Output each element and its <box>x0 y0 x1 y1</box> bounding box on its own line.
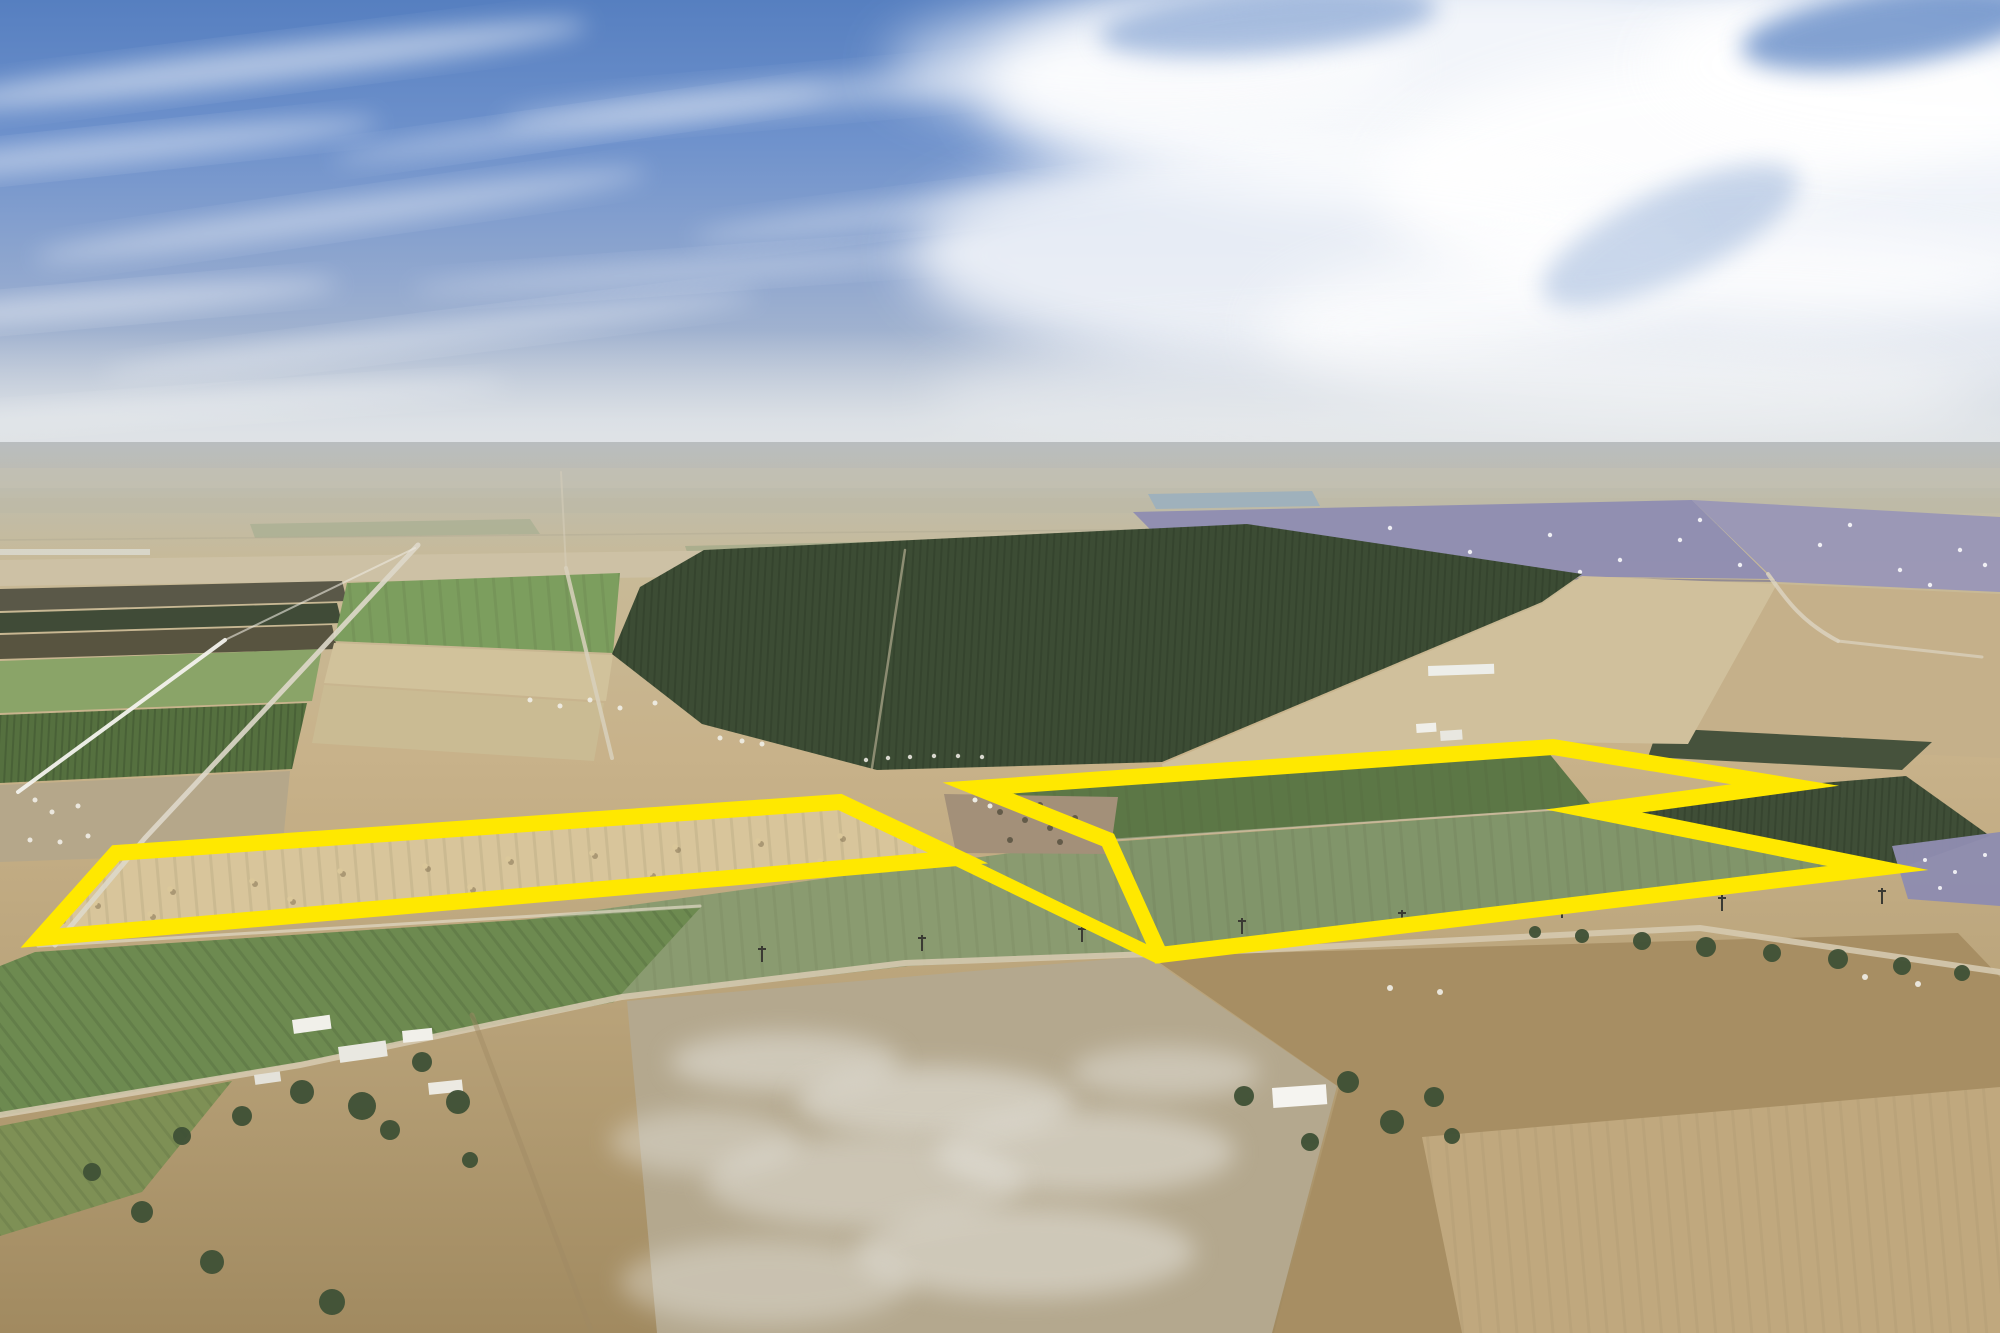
pond-strip <box>1148 491 1320 509</box>
far-field-strip <box>0 468 2000 488</box>
aerial-photo-canvas <box>0 0 2000 1333</box>
far-greenhouse <box>0 549 150 555</box>
salt-patch <box>610 1110 800 1174</box>
farmhouse-white <box>1272 1084 1327 1108</box>
salt-patch <box>1070 1046 1260 1098</box>
salt-patch <box>620 1240 910 1324</box>
aerial-photo <box>0 0 2000 1333</box>
